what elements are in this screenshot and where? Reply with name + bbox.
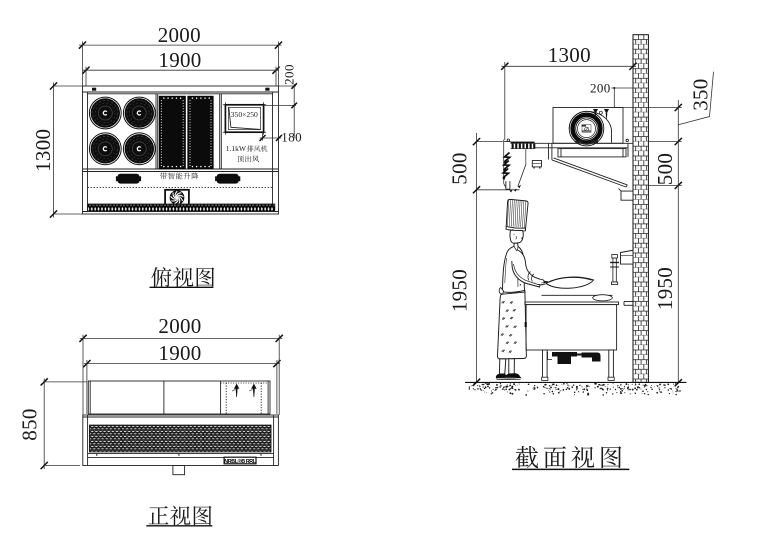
svg-text:200: 200 (590, 80, 611, 95)
svg-text:1.1kW: 1.1kW (226, 144, 247, 153)
svg-text:350: 350 (688, 78, 712, 110)
svg-text:NRBL®B RRL: NRBL®B RRL (224, 458, 257, 465)
svg-text:200: 200 (281, 64, 296, 85)
svg-text:1900: 1900 (158, 48, 201, 72)
svg-text:500: 500 (653, 153, 677, 185)
svg-text:1950: 1950 (653, 267, 677, 310)
svg-text:1300: 1300 (31, 129, 55, 172)
svg-text:1900: 1900 (158, 341, 201, 365)
svg-text:1300: 1300 (548, 43, 591, 67)
svg-text:2000: 2000 (158, 23, 201, 47)
svg-text:2000: 2000 (158, 314, 201, 338)
svg-text:500: 500 (447, 152, 471, 184)
svg-text:850: 850 (18, 408, 42, 440)
svg-text:1950: 1950 (447, 269, 471, 312)
svg-text:180: 180 (281, 130, 302, 145)
svg-text:Ø: Ø (584, 126, 589, 133)
svg-text:350×250: 350×250 (231, 110, 258, 119)
